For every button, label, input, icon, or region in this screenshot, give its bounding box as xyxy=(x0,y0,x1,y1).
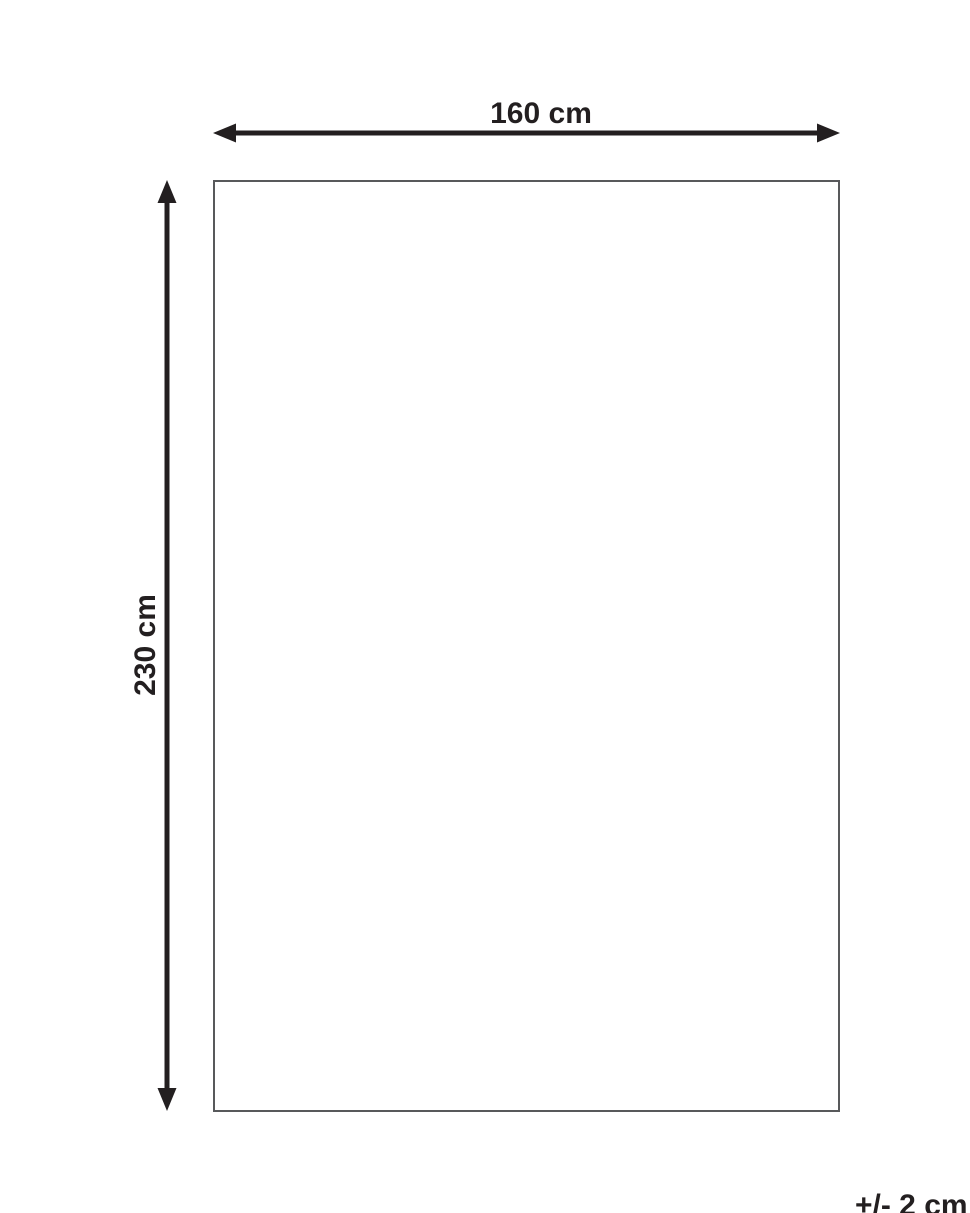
arrowhead-bottom-icon xyxy=(158,1088,177,1111)
arrowhead-right-icon xyxy=(817,124,840,143)
tolerance-label: +/- 2 cm xyxy=(855,1191,968,1213)
height-dimension-label: 230 cm xyxy=(131,594,161,696)
product-outline-rectangle xyxy=(213,180,840,1112)
arrowhead-top-icon xyxy=(158,180,177,203)
dimension-diagram: 160 cm 230 cm +/- 2 cm xyxy=(0,0,970,1213)
width-dimension-label: 160 cm xyxy=(490,99,592,129)
arrowhead-left-icon xyxy=(213,124,236,143)
